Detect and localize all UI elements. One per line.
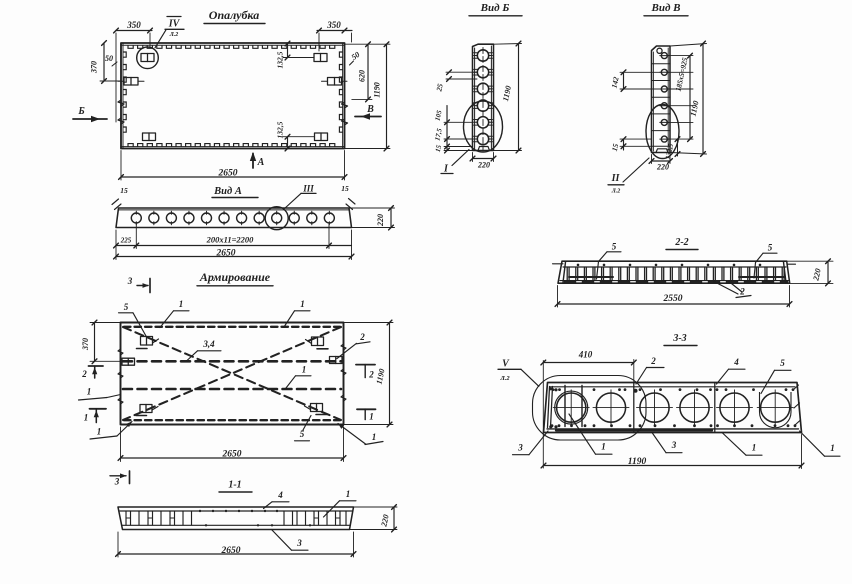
svg-text:Вид Б: Вид Б: [480, 2, 510, 14]
svg-text:2650: 2650: [221, 546, 241, 556]
svg-text:1190: 1190: [628, 457, 647, 467]
svg-text:1: 1: [346, 489, 351, 499]
svg-text:2: 2: [81, 369, 87, 379]
svg-text:Л.2: Л.2: [169, 32, 179, 38]
svg-text:1: 1: [87, 387, 92, 397]
svg-text:1: 1: [84, 413, 89, 423]
svg-text:620: 620: [358, 70, 367, 82]
svg-text:Л.2: Л.2: [499, 375, 510, 382]
svg-text:IV: IV: [168, 19, 181, 30]
svg-text:Вид А: Вид А: [213, 186, 242, 197]
svg-text:15: 15: [341, 184, 349, 193]
svg-text:15: 15: [120, 186, 128, 195]
svg-text:132,5: 132,5: [276, 121, 285, 138]
svg-text:370: 370: [90, 61, 99, 74]
svg-text:1: 1: [369, 412, 374, 422]
svg-text:1: 1: [300, 299, 305, 309]
svg-text:132,5: 132,5: [276, 51, 285, 68]
svg-text:5: 5: [768, 243, 773, 253]
svg-text:225: 225: [120, 237, 132, 245]
svg-text:350: 350: [326, 20, 341, 30]
svg-text:3: 3: [296, 538, 302, 548]
svg-text:1: 1: [179, 299, 184, 309]
svg-text:Л.2: Л.2: [611, 189, 621, 195]
svg-text:1: 1: [97, 427, 102, 437]
svg-text:2: 2: [650, 356, 656, 366]
svg-text:50: 50: [105, 54, 113, 63]
svg-text:3: 3: [671, 440, 677, 450]
svg-text:2: 2: [368, 370, 374, 380]
svg-text:В: В: [366, 104, 374, 115]
svg-text:220: 220: [376, 214, 385, 227]
svg-text:Вид В: Вид В: [651, 2, 681, 14]
svg-text:5: 5: [300, 429, 305, 439]
svg-text:5: 5: [124, 302, 129, 312]
svg-text:Б: Б: [77, 106, 85, 117]
svg-text:2: 2: [359, 332, 365, 342]
svg-text:1: 1: [372, 432, 377, 442]
svg-text:1-1: 1-1: [228, 480, 241, 491]
svg-text:2650: 2650: [222, 450, 242, 460]
svg-text:Опалубка: Опалубка: [209, 8, 259, 22]
svg-text:Армирование: Армирование: [199, 270, 271, 284]
svg-text:1: 1: [830, 443, 835, 453]
svg-text:III: III: [302, 184, 314, 194]
svg-text:200х11=2200: 200х11=2200: [206, 235, 255, 245]
svg-text:2550: 2550: [663, 294, 683, 304]
svg-text:1: 1: [302, 365, 307, 375]
svg-text:3: 3: [127, 276, 133, 286]
svg-text:3,4: 3,4: [202, 339, 215, 349]
svg-text:220: 220: [477, 161, 490, 170]
svg-text:2650: 2650: [216, 249, 236, 259]
svg-text:3-3: 3-3: [672, 333, 686, 344]
svg-text:3: 3: [517, 443, 523, 453]
svg-text:5: 5: [780, 358, 785, 368]
svg-text:350: 350: [126, 20, 141, 30]
svg-text:410: 410: [578, 350, 593, 360]
svg-text:5: 5: [612, 242, 617, 252]
svg-text:II: II: [611, 173, 621, 184]
svg-text:4: 4: [733, 357, 739, 367]
svg-text:1: 1: [601, 442, 606, 452]
svg-text:1: 1: [752, 443, 757, 453]
svg-text:1190: 1190: [373, 82, 382, 98]
svg-text:А: А: [257, 157, 265, 168]
svg-text:2650: 2650: [218, 169, 238, 179]
svg-text:370: 370: [81, 338, 90, 351]
svg-text:3: 3: [114, 477, 120, 487]
svg-text:2-2: 2-2: [674, 237, 688, 248]
svg-text:220: 220: [656, 163, 669, 172]
svg-text:4: 4: [277, 490, 283, 500]
